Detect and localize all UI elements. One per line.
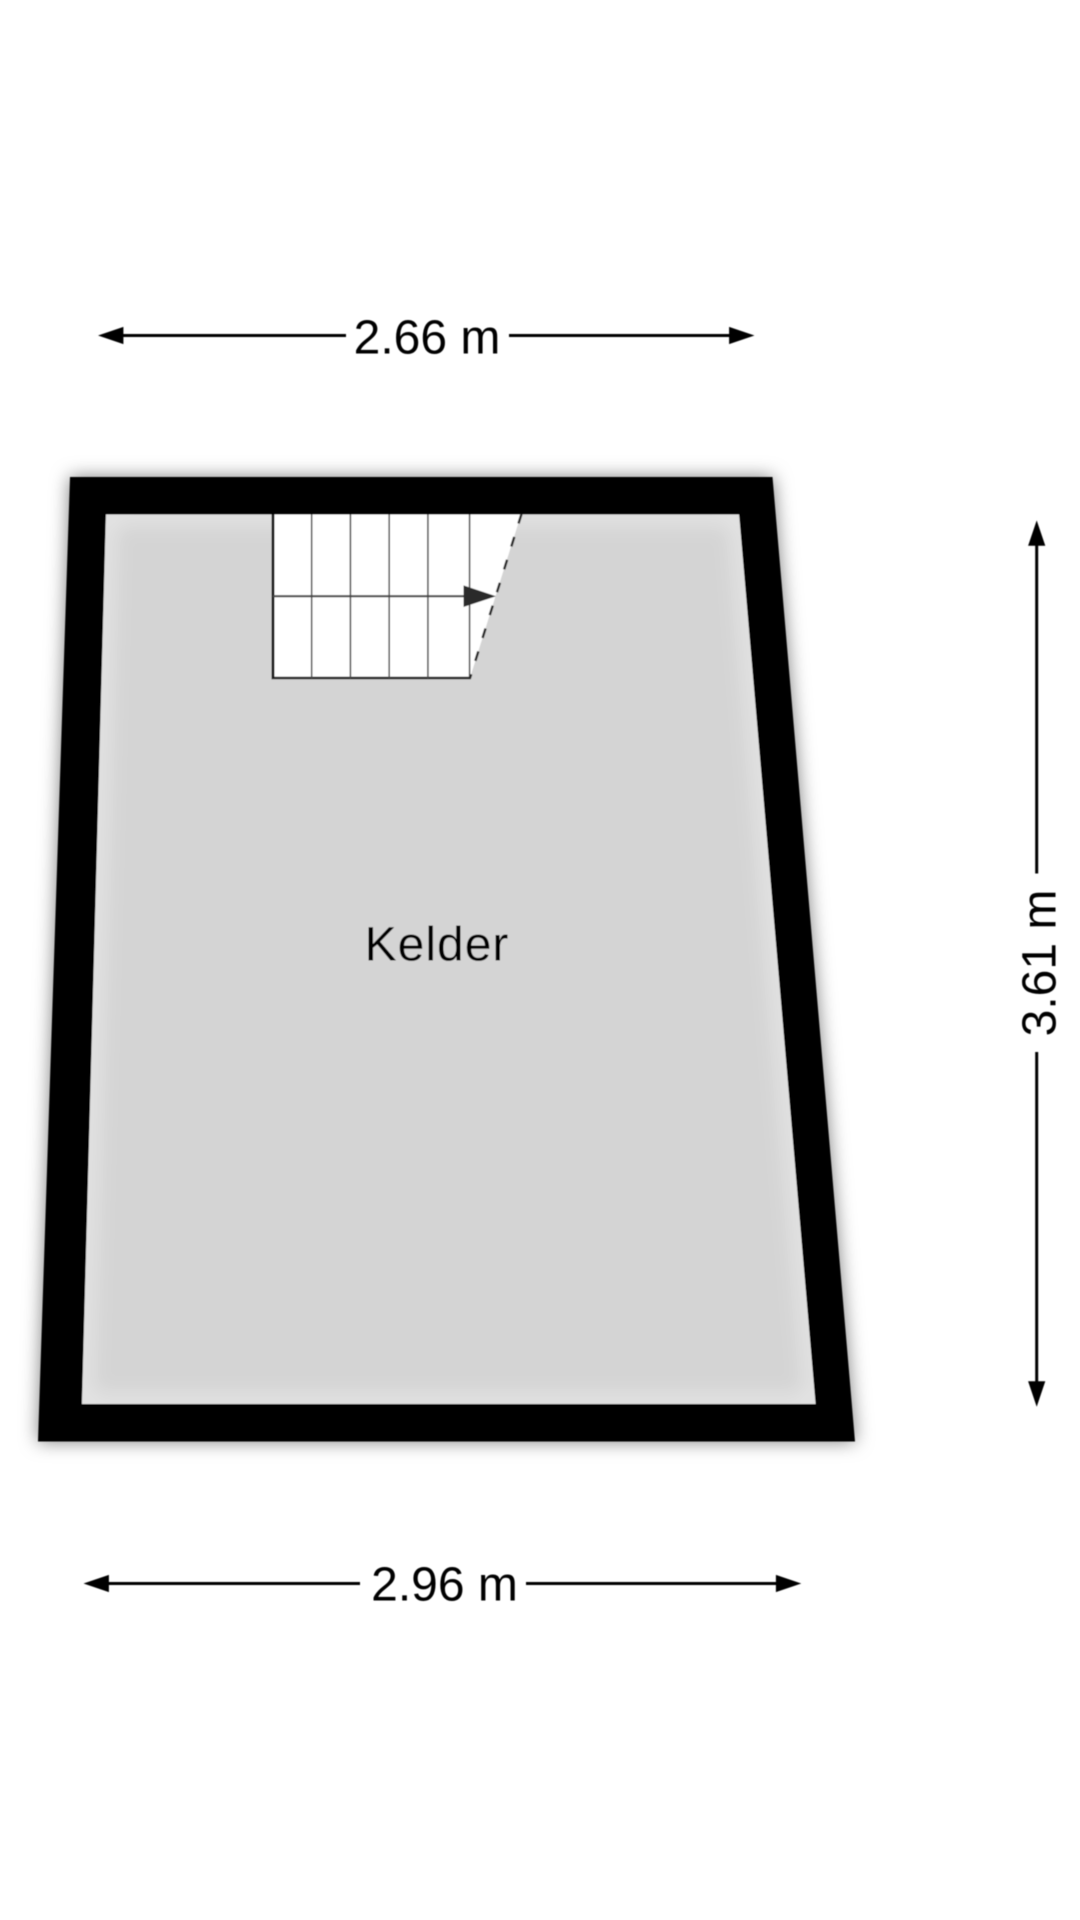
svg-text:3.61 m: 3.61 m (1014, 890, 1067, 1037)
svg-text:2.66 m: 2.66 m (354, 312, 501, 365)
svg-text:2.96 m: 2.96 m (371, 1559, 518, 1612)
svg-text:Kelder: Kelder (365, 919, 510, 972)
